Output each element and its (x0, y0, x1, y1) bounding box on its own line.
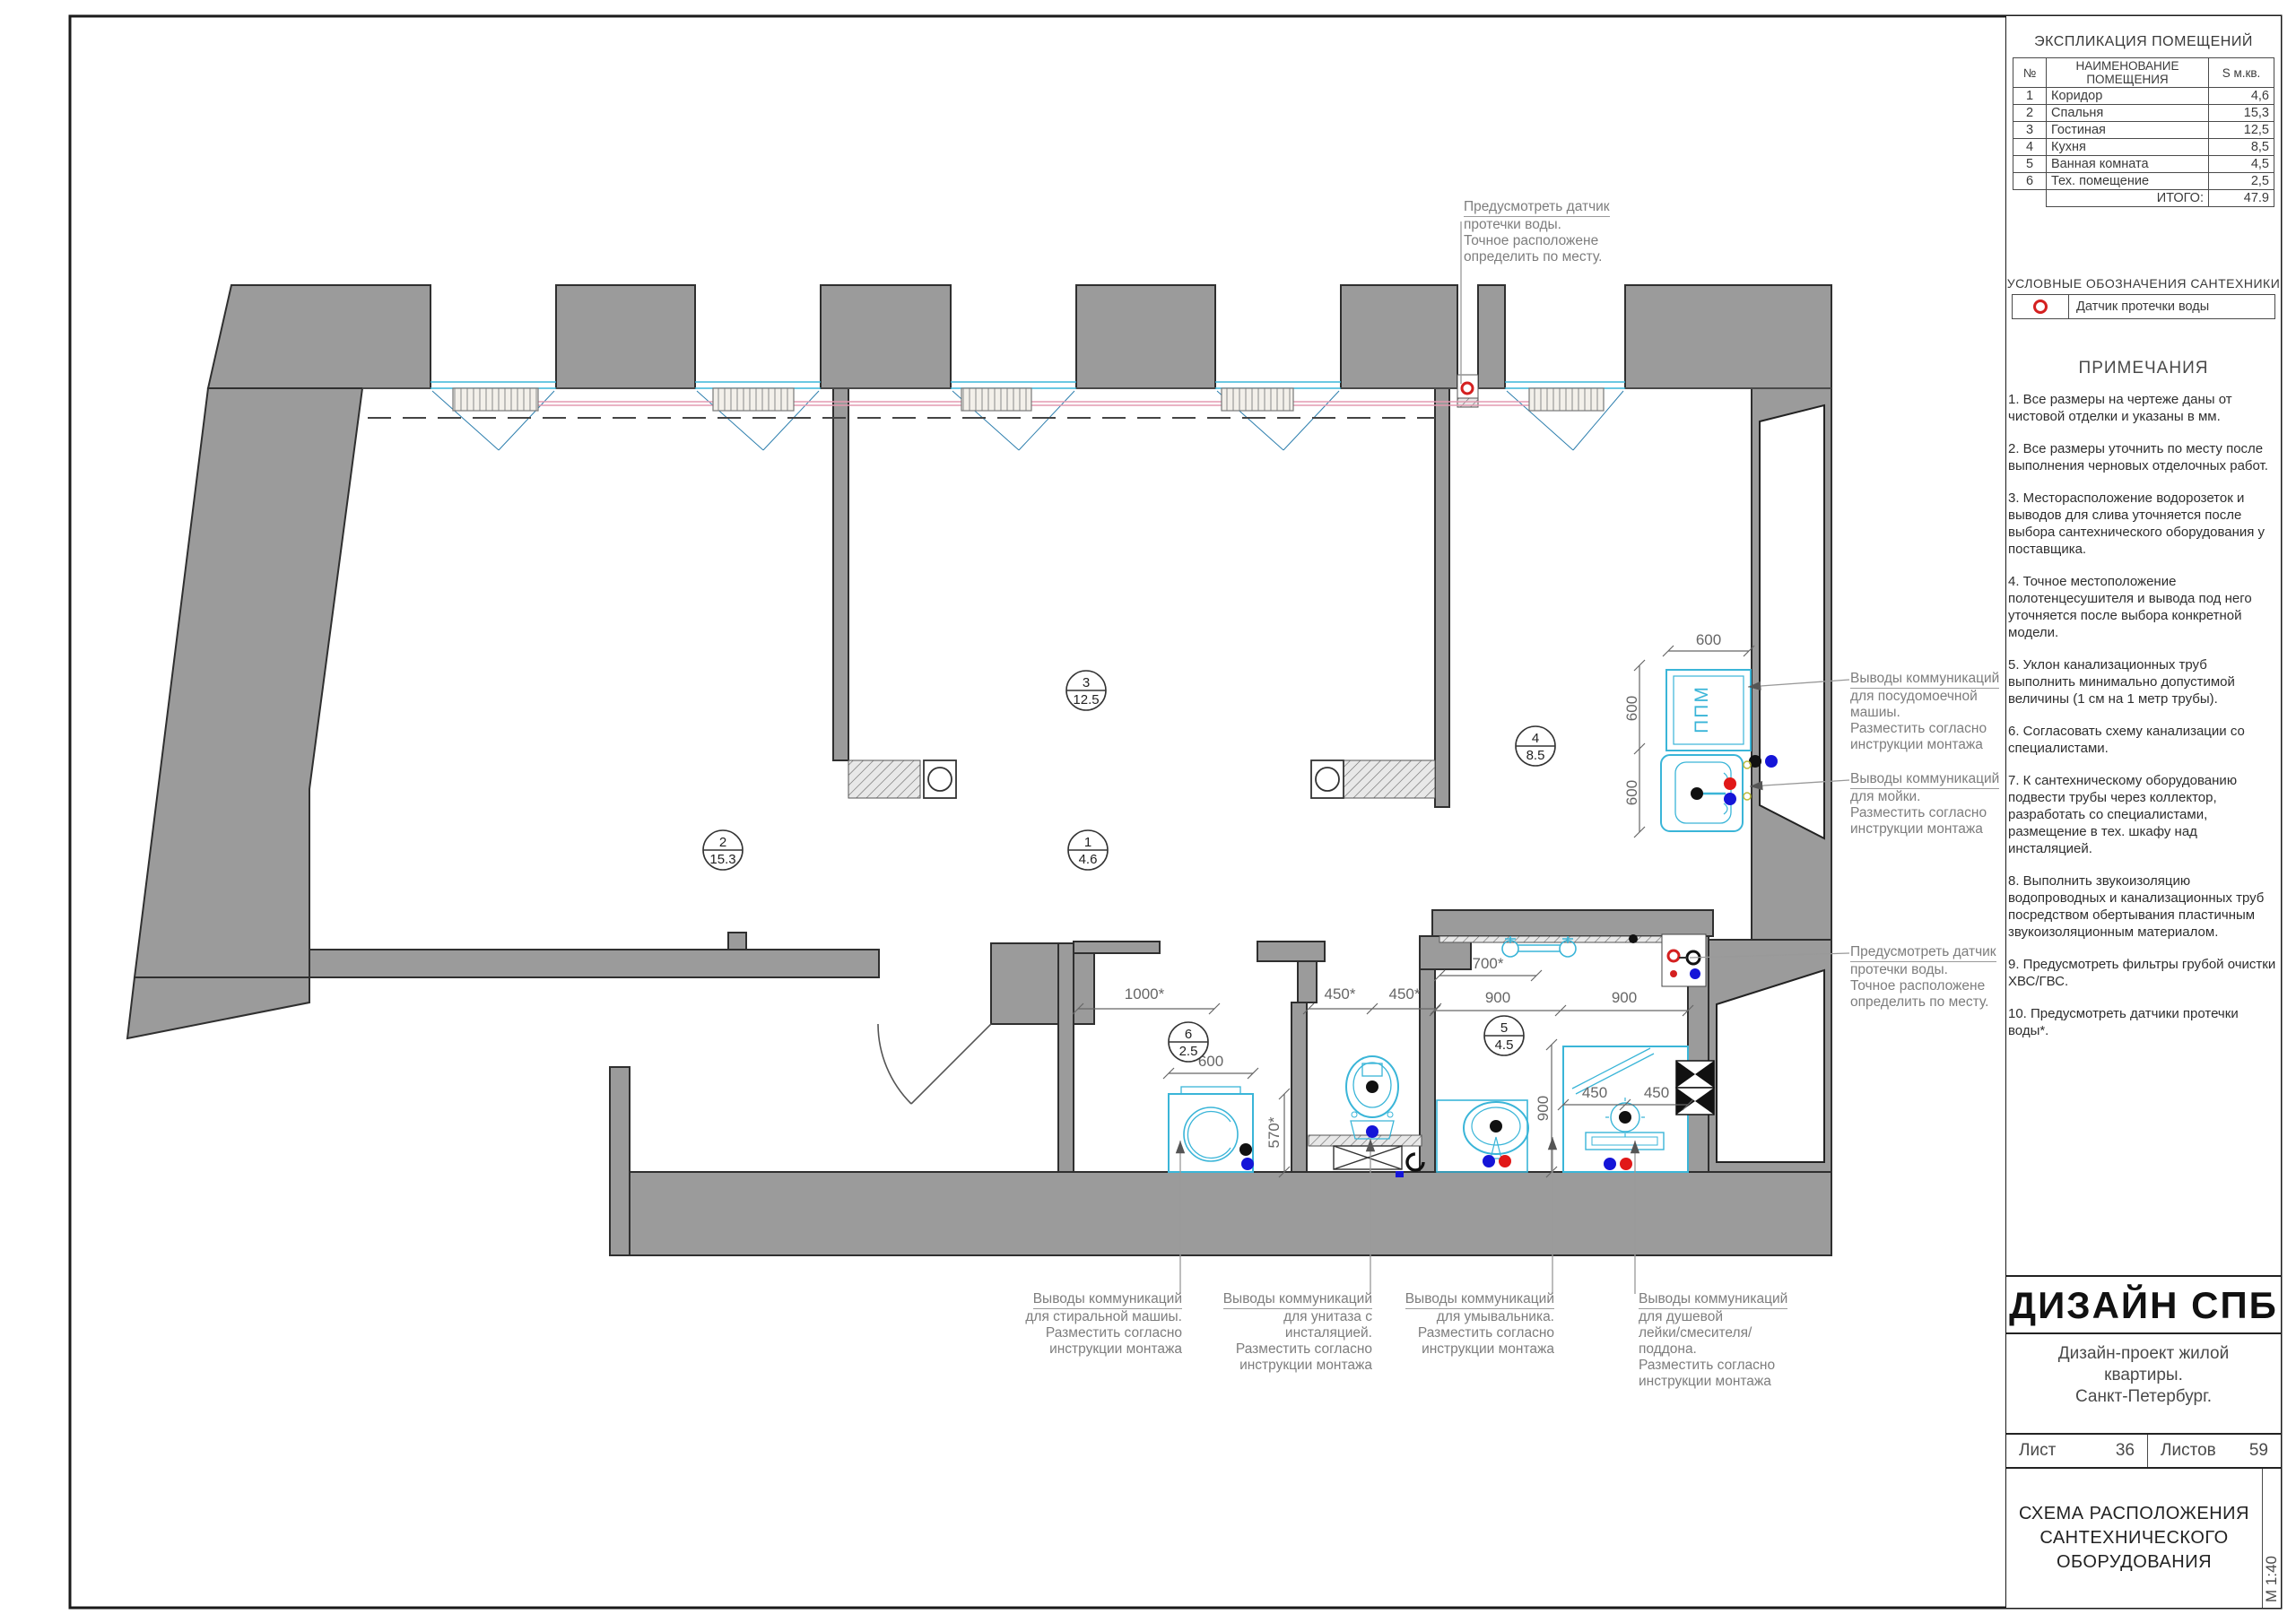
washing-machine-symbol (1169, 1087, 1253, 1172)
annotation-washer: Выводы коммуникаций для стиральной машиы… (1019, 1291, 1182, 1358)
heating (453, 388, 1604, 411)
windows (362, 382, 1831, 450)
svg-text:12.5: 12.5 (1073, 692, 1099, 707)
drain-outlet (1396, 1171, 1404, 1177)
svg-text:900: 900 (1485, 989, 1510, 1006)
svg-text:3: 3 (1083, 675, 1090, 690)
wall-bottom-band (610, 1172, 1831, 1255)
sheet-numbers-row: Лист 36 Листов 59 (2006, 1433, 2281, 1467)
svg-text:600: 600 (1623, 696, 1640, 721)
svg-text:450*: 450* (1325, 985, 1356, 1002)
note-item: 8. Выполнить звукоизоляцию водопроводных… (2008, 872, 2277, 941)
sheet-number: 36 (2116, 1441, 2135, 1461)
notes-title: ПРИМЕЧАНИЯ (2006, 359, 2281, 378)
note-item: 7. К сантехническому оборудованию подвес… (2008, 772, 2277, 857)
wall-partition-left (833, 388, 848, 760)
col-name: НАИМЕНОВАНИЕ ПОМЕЩЕНИЯ (2047, 58, 2209, 88)
annotation-leak-sensor-right: Предусмотреть датчик протечки воды. Точн… (1850, 944, 2010, 1011)
sheet-label: Лист (2019, 1441, 2056, 1461)
annotation-kitchen-sink: Выводы коммуникаций для мойки. Разместит… (1850, 771, 2010, 838)
room-schedule-table: № НАИМЕНОВАНИЕ ПОМЕЩЕНИЯ S м.кв. 1 Корид… (2013, 57, 2274, 207)
svg-text:4.5: 4.5 (1495, 1037, 1514, 1053)
table-row: 6 Тех. помещение 2,5 (2013, 173, 2274, 190)
table-row: 4 Кухня 8,5 (2013, 139, 2274, 156)
svg-text:15.3: 15.3 (709, 852, 735, 867)
room-tag-tech: 6 2.5 (1169, 1022, 1208, 1062)
annotation-leak-sensor-top: Предусмотреть датчик протечки воды. Точн… (1464, 199, 1621, 265)
col-area: S м.кв. (2209, 58, 2274, 88)
svg-text:6: 6 (1185, 1027, 1192, 1042)
scale-label: М 1:40 (2263, 1556, 2281, 1608)
annotation-basin: Выводы коммуникаций для умывальника. Раз… (1389, 1291, 1554, 1358)
svg-text:600: 600 (1623, 780, 1640, 805)
col-num: № (2013, 58, 2047, 88)
room-tag-living: 3 12.5 (1066, 671, 1106, 710)
notes-section: ПРИМЕЧАНИЯ 1. Все размеры на чертеже дан… (2006, 359, 2281, 1055)
svg-text:2.5: 2.5 (1179, 1044, 1198, 1059)
wall-left-tip (127, 977, 309, 1038)
svg-text:450: 450 (1582, 1084, 1607, 1101)
collector-niche (1662, 934, 1706, 986)
duct-boxes (924, 760, 1344, 798)
table-row: 1 Коридор 4,6 (2013, 88, 2274, 105)
table-row: 2 Спальня 15,3 (2013, 105, 2274, 122)
drawing-title-row: СХЕМА РАСПОЛОЖЕНИЯ САНТЕХНИЧЕСКОГО ОБОРУ… (2006, 1467, 2281, 1608)
room-schedule-title: ЭКСПЛИКАЦИЯ ПОМЕЩЕНИЙ (2006, 34, 2281, 50)
note-item: 4. Точное местоположение полотенцесушите… (2008, 573, 2277, 641)
table-total-row: ИТОГО: 47.9 (2013, 190, 2274, 207)
wall-bedroom-bottom (309, 950, 879, 977)
annotation-dishwasher: Выводы коммуникаций для посудомоечной ма… (1850, 671, 2010, 753)
wall-partition-kitchen (1435, 388, 1449, 807)
svg-text:900: 900 (1612, 989, 1637, 1006)
title-block: ДИЗАЙН СПБ Дизайн-проект жилой квартиры.… (2006, 1275, 2281, 1608)
wall-landing-left (610, 1067, 630, 1255)
room-tag-kitchen: 4 8.5 (1516, 726, 1555, 766)
svg-text:700*: 700* (1473, 955, 1504, 972)
wall-left-slant (135, 388, 362, 977)
shower-symbol (1563, 1046, 1688, 1172)
title-block-panel: ЭКСПЛИКАЦИЯ ПОМЕЩЕНИЙ № НАИМЕНОВАНИЕ ПОМ… (2006, 16, 2281, 1608)
table-row: 3 Гостиная 12,5 (2013, 122, 2274, 139)
entrance-door (878, 1024, 991, 1104)
sheets-total: 59 (2249, 1441, 2268, 1461)
svg-text:2: 2 (719, 835, 726, 850)
company-name: ДИЗАЙН СПБ (2006, 1277, 2281, 1332)
svg-text:8.5: 8.5 (1526, 748, 1545, 763)
legend-item-label: Датчик протечки воды (2069, 299, 2209, 314)
toilet-installation (1334, 1146, 1402, 1169)
svg-text:5: 5 (1500, 1020, 1508, 1036)
room-tag-corridor: 1 4.6 (1068, 830, 1108, 870)
wall-bath-top (1432, 910, 1713, 936)
leak-sensor-icon (2033, 299, 2048, 314)
note-item: 10. Предусмотреть датчики протечки воды*… (2008, 1005, 2277, 1039)
note-item: 5. Уклон канализационных труб выполнить … (2008, 656, 2277, 707)
svg-text:900: 900 (1535, 1096, 1552, 1121)
wall-pier (208, 285, 430, 388)
drawing-title: СХЕМА РАСПОЛОЖЕНИЯ САНТЕХНИЧЕСКОГО ОБОРУ… (2006, 1469, 2262, 1608)
radiators (453, 388, 1604, 411)
wall-entrance-block (991, 943, 1094, 1024)
svg-text:1000*: 1000* (1125, 985, 1165, 1002)
note-item: 3. Месторасположение водорозеток и вывод… (2008, 490, 2277, 558)
legend: УСЛОВНЫЕ ОБОЗНАЧЕНИЯ САНТЕХНИКИ Датчик п… (2006, 276, 2281, 319)
wall-section-marks (1676, 1061, 1714, 1115)
svg-text:600: 600 (1696, 631, 1721, 648)
sheets-label: Листов (2161, 1441, 2216, 1461)
annotation-shower: Выводы коммуникаций для душевой лейки/см… (1639, 1291, 1805, 1390)
project-description: Дизайн-проект жилой квартиры. Санкт-Пете… (2006, 1332, 2281, 1433)
svg-text:450*: 450* (1389, 985, 1421, 1002)
svg-text:4.6: 4.6 (1079, 852, 1098, 867)
legend-item: Датчик протечки воды (2012, 294, 2275, 319)
note-item: 1. Все размеры на чертеже даны от чистов… (2008, 391, 2277, 425)
table-row: 5 Ванная комната 4,5 (2013, 156, 2274, 173)
note-item: 2. Все размеры уточнить по месту после в… (2008, 440, 2277, 474)
drawing-sheet: ППМ (0, 0, 2296, 1623)
legend-title: УСЛОВНЫЕ ОБОЗНАЧЕНИЯ САНТЕХНИКИ (2006, 276, 2281, 291)
svg-text:4: 4 (1532, 731, 1539, 746)
note-item: 6. Согласовать схему канализации со спец… (2008, 723, 2277, 757)
svg-text:1: 1 (1084, 835, 1091, 850)
svg-text:570*: 570* (1265, 1116, 1283, 1148)
note-item: 9. Предусмотреть фильтры грубой очистки … (2008, 956, 2277, 990)
hatch-elements (848, 398, 1664, 1146)
annotation-toilet: Выводы коммуникаций для унитаза с инстал… (1205, 1291, 1372, 1374)
svg-text:450: 450 (1644, 1084, 1669, 1101)
room-tag-bathroom: 5 4.5 (1484, 1016, 1524, 1055)
walls (127, 285, 1831, 1255)
room-tag-bedroom: 2 15.3 (703, 830, 743, 870)
dishwasher-label: ППМ (1692, 685, 1712, 733)
room-schedule: ЭКСПЛИКАЦИЯ ПОМЕЩЕНИЙ № НАИМЕНОВАНИЕ ПОМ… (2006, 34, 2281, 207)
